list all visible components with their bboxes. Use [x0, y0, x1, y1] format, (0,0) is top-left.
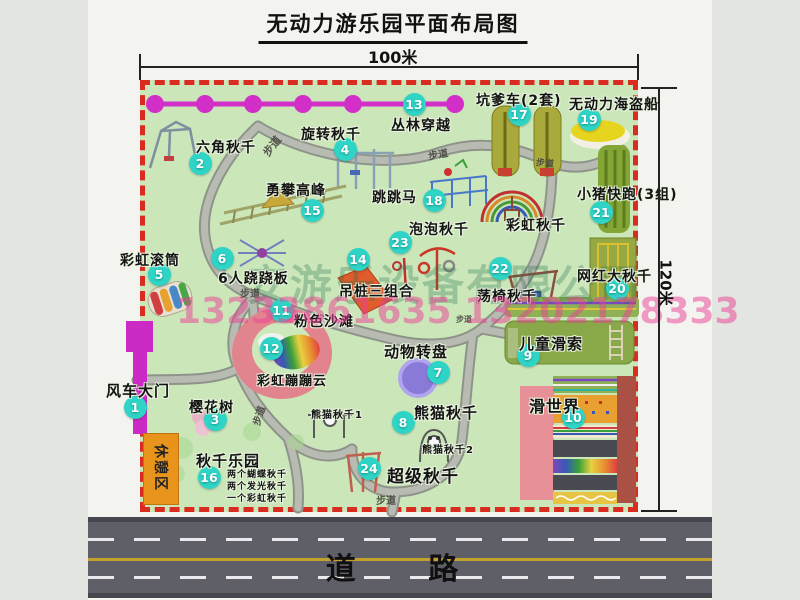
attraction-label-15: 勇攀高峰 — [266, 180, 326, 200]
stage: 无动力游乐园平面布局图 100米 120米 — [0, 0, 800, 600]
attraction-label-9: 儿童滑索 — [519, 333, 583, 354]
extra-label-2: 熊猫秋千2 — [422, 441, 474, 456]
extra-label-1: 熊猫秋千1 — [311, 406, 363, 421]
path-label-6: 步道 — [376, 492, 396, 507]
height-dimension-label: 120米 — [656, 258, 677, 308]
width-dimension-tick-right — [637, 54, 639, 80]
width-dimension-label: 100米 — [368, 44, 417, 68]
attraction-badge-6: 6 — [211, 247, 234, 270]
attraction-badge-13: 13 — [403, 93, 426, 116]
attraction-badge-24: 24 — [358, 457, 381, 480]
road: 道 路 — [88, 517, 712, 598]
attraction-label-21: 小猪快跑(3组) — [577, 184, 678, 204]
attraction-label-18: 跳跳马 — [372, 187, 417, 207]
path-label-2: 步道 — [535, 155, 554, 170]
height-dimension-tick-top — [641, 87, 677, 89]
attraction-label-5: 彩虹滚筒 — [120, 250, 180, 270]
attraction-label-24: 超级秋千 — [387, 462, 459, 487]
attraction-label-13: 丛林穿越 — [391, 115, 451, 135]
height-dimension-tick-bottom — [641, 510, 677, 512]
attraction-label-17: 坑爹车(2套) — [476, 90, 562, 110]
page-title: 无动力游乐园平面布局图 — [259, 8, 528, 44]
attraction-label-4: 旋转秋千 — [301, 124, 361, 144]
attraction-label-3: 樱花树 — [189, 397, 234, 417]
attraction-label-20: 网红大秋千 — [577, 266, 652, 286]
extra-label-0: 彩虹秋千 — [506, 215, 566, 235]
attraction-badge-8: 8 — [392, 411, 415, 434]
attraction-label-19: 无动力海盗船 — [569, 94, 659, 114]
extra-label-5: 一个彩虹秋千 — [227, 491, 287, 504]
attraction-label-12: 彩虹蹦蹦云 — [257, 370, 327, 389]
attraction-badge-15: 15 — [301, 199, 324, 222]
road-label: 道 路 — [88, 544, 712, 588]
attraction-label-8: 熊猫秋千 — [414, 402, 478, 423]
road-dash-line-top — [88, 538, 712, 541]
attraction-badge-22: 22 — [489, 257, 512, 280]
attraction-label-1: 风车大门 — [106, 380, 170, 401]
attraction-badge-7: 7 — [427, 361, 450, 384]
attraction-badge-18: 18 — [423, 189, 446, 212]
attraction-label-10: 滑世界 — [529, 393, 580, 417]
width-dimension-tick-left — [139, 54, 141, 80]
attraction-label-23: 泡泡秋千 — [409, 219, 469, 239]
attraction-badge-12: 12 — [260, 337, 283, 360]
rest-area-label: 休憩区 — [150, 433, 170, 503]
attraction-label-7: 动物转盘 — [384, 341, 448, 362]
attraction-badge-14: 14 — [347, 248, 370, 271]
attraction-label-2: 六角秋千 — [196, 137, 256, 157]
